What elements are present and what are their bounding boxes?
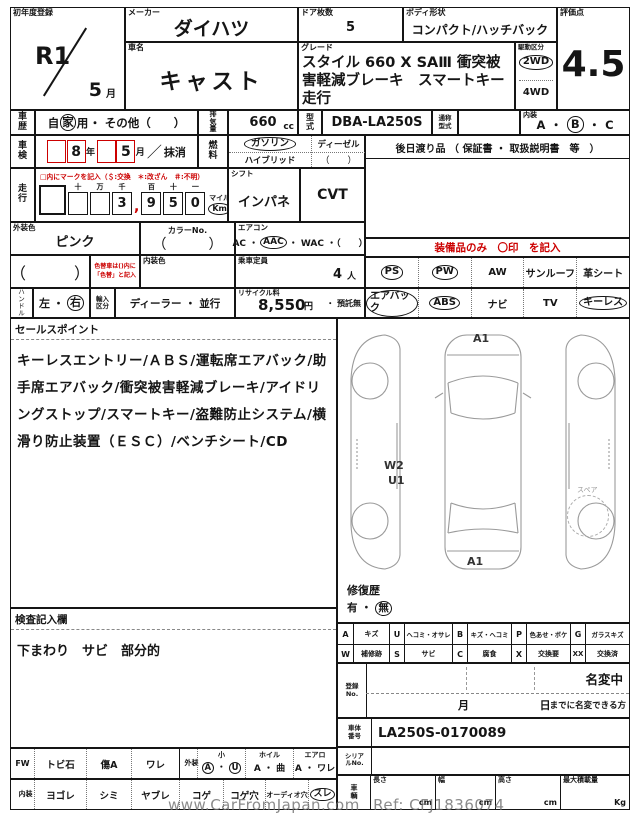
first-registration-cell: 初年度登録 R1 5 月	[10, 7, 125, 110]
capacity-cell: 乗車定員 4 人	[235, 255, 365, 288]
handle-right-circled: 右	[67, 295, 84, 311]
legend-desc-w: 補修跡	[353, 645, 389, 663]
shaken-slash: ／	[147, 141, 162, 162]
registration-month: 月	[458, 697, 469, 713]
car-name-cell: 車名 キャスト	[125, 42, 298, 110]
equip-abs: ABS	[418, 289, 471, 317]
aircon-aac-circled: AAC	[260, 236, 287, 249]
repair-history-label: 修復歴	[347, 582, 380, 598]
exterior-section-label-cell: 外装	[179, 749, 197, 778]
history-value-cell: 自家用 ・ その他（ ）	[35, 110, 198, 135]
digit-box-1	[68, 192, 88, 215]
fuel-diesel-option: ディーゼル	[311, 136, 365, 153]
glass-stone-chip: トビ石	[34, 749, 86, 778]
interior-c: C	[605, 118, 613, 132]
legend-row-1: A キズ U ヘコミ・オサレ B キズ・ヘコミ P 色あせ・ボケ G ガラスキズ	[338, 624, 629, 645]
serial-label-cell: シリアルNo.	[338, 748, 372, 774]
dims-load-unit: Kg	[614, 798, 626, 807]
fuel-other-option: （ ）	[311, 152, 365, 167]
repair-no-circled: 無	[375, 601, 392, 616]
auction-sheet: 初年度登録 R1 5 月 メーカー ダイハツ 車名 キャスト ドア枚数 5 ボデ…	[0, 0, 640, 819]
fuel-gasoline-circled: ガソリン	[244, 137, 296, 151]
spare-tire-label: スペア	[577, 485, 598, 495]
interior-a: A	[536, 118, 545, 132]
doors-label: ドア枚数	[301, 9, 333, 18]
fuel-value-cell: ガソリン ハイブリッド ディーゼル （ ）	[228, 135, 365, 168]
chassis-label: 車体番号	[347, 725, 362, 739]
legend-row-2: W 補修跡 S サビ C 腐食 X 交換要 XX 交換済	[338, 645, 629, 663]
repaint-note-1: 色替車は()内に	[91, 262, 139, 271]
car-top-view	[435, 335, 531, 569]
grade-label: グレード	[301, 44, 333, 53]
fuel-gasoline-option: ガソリン	[229, 136, 311, 153]
aircon-label: エアコン	[238, 224, 268, 232]
chassis-label-cell: 車体番号	[338, 719, 372, 746]
alias-model-label-cell: 通称型式	[432, 110, 458, 135]
transmission-value: CVT	[301, 169, 364, 221]
wheel-options: A ・ 曲	[254, 761, 285, 774]
model-code-label: 型式	[305, 114, 315, 132]
model-code-value: DBA-LA250S	[323, 111, 431, 134]
first-registration-month: 5	[89, 79, 102, 101]
registration-label-cell: 登録No.	[338, 664, 367, 717]
repaint-parens: （ ）	[11, 256, 89, 287]
aero-options: A ・ ワレ	[295, 761, 335, 774]
watermark-site: www.CarFromJapan.com	[168, 796, 360, 814]
repair-yes: 有	[347, 602, 358, 614]
use-other: ・ その他（ ）	[89, 115, 185, 131]
glass-row: FW トビ石 傷A ワレ 外装 小 A ・ U ホイル A ・ 曲 エアロ A …	[10, 748, 337, 779]
watermark-ref: Ref: CFJ1836074	[373, 796, 504, 814]
aircon-cell: エアコン AC ・ AAC ・ WAC ・（ ）	[235, 222, 365, 255]
damage-u1: U1	[388, 474, 405, 487]
shaken-value-cell: 8 年 5 月 ／ 抹消	[35, 135, 198, 168]
alias-model-label: 通称型式	[438, 115, 452, 129]
exterior-small-header: 小	[198, 750, 245, 760]
drive-2wd-option: 2WD	[516, 55, 556, 70]
displacement-label: 排気量	[209, 111, 217, 134]
legend-code-g: G	[570, 624, 585, 644]
exterior-section-label: 外装	[185, 760, 193, 768]
small-a-circled: A	[202, 762, 215, 775]
legend-code-c: C	[452, 645, 467, 663]
legend-code-xx: XX	[570, 645, 585, 663]
shift-cell: シフト インパネ	[228, 168, 300, 222]
legend-desc-x: 交換要	[526, 645, 570, 663]
digit-box-2	[90, 192, 110, 215]
model-code-label-cell: 型式	[298, 110, 322, 135]
glass-fw-label: FW	[11, 749, 34, 778]
handle-left: 左	[39, 295, 50, 311]
maker-cell: メーカー ダイハツ	[125, 7, 298, 42]
sales-points-text: キーレスエントリー/ＡＢＳ/運転席エアバック/助手席エアバック/衝突被害軽減ブレ…	[11, 340, 336, 464]
wheel-cell: ホイル A ・ 曲	[245, 749, 293, 778]
score-label: 評価点	[560, 9, 584, 18]
import-value-cell: ディーラー ・ 並行	[115, 288, 235, 318]
car-name-label: 車名	[128, 44, 144, 53]
car-left-side-view	[351, 335, 400, 569]
interior-b-circled: B	[567, 116, 584, 132]
digit-header-2: 万	[97, 182, 104, 192]
watermark: www.CarFromJapan.com Ref: CFJ1836074	[168, 796, 505, 814]
interior-dirt: ヨゴレ	[34, 780, 86, 809]
legend-desc-u: ヘコミ・オサレ	[404, 624, 452, 644]
use-circled: 家	[60, 114, 76, 130]
legend-desc-xx: 交換済	[585, 645, 629, 663]
registration-pending: 名変中	[585, 669, 623, 688]
import-label-cell: 輸入区分	[90, 288, 115, 318]
chassis-value: LA250S-0170089	[378, 719, 629, 746]
dims-height-label: 高さ	[498, 777, 512, 785]
inspection-notes-box: 検査記入欄 下まわり サビ 部分的	[10, 608, 337, 748]
registration-label: 登録No.	[344, 683, 360, 697]
drive-type-label: 駆動区分	[518, 44, 544, 51]
doors-cell: ドア枚数 5	[298, 7, 403, 42]
legend-code-s: S	[389, 645, 404, 663]
registration-bottom-row: 月 日 までに名変できる方	[366, 693, 629, 717]
equip-aw-label: AW	[488, 267, 506, 278]
legend-code-u: U	[389, 624, 404, 644]
registration-section: 登録No. 名変中 月 日 までに名変できる方	[337, 663, 630, 718]
glass-scratch-a: 傷A	[86, 749, 131, 778]
damage-front-a1: A1	[473, 332, 489, 345]
model-code-value-cell: DBA-LA250S	[322, 110, 432, 135]
registration-divider-2	[534, 667, 535, 690]
fuel-label: 燃料	[208, 142, 219, 162]
car-diagram-panel: A1 W2 U1 A1 スペア 修復歴 有 ・ 無	[337, 318, 630, 623]
legend-desc-g: ガラスキズ	[585, 624, 629, 644]
color-no-cell: カラーNo. （ ）	[140, 222, 235, 255]
serial-label: シリアルNo.	[343, 754, 367, 768]
spare-tire-circle	[567, 495, 609, 537]
shaken-erased: 抹消	[164, 144, 186, 160]
first-registration-year: R1	[35, 42, 70, 70]
aircon-post: ・ WAC ・（ ）	[289, 236, 368, 249]
shaken-year-box-empty	[47, 140, 66, 163]
body-shape-cell: ボディ形状 コンパクト/ハッチバック	[403, 7, 557, 42]
dims-length-label: 長さ	[373, 777, 387, 785]
use-pre: 自	[48, 115, 60, 131]
shaken-month-box-empty	[97, 140, 116, 163]
equip-leather-label: 革シート	[583, 265, 623, 280]
equip-aw: AW	[471, 258, 524, 287]
aero-cell: エアロ A ・ ワレ	[293, 749, 336, 778]
dims-height-unit: cm	[544, 798, 557, 807]
drive-4wd-option: 4WD	[516, 87, 556, 98]
legend-code-p: P	[511, 624, 526, 644]
interior-row-label: 内装	[19, 791, 27, 799]
equip-keyless: キーレス	[576, 289, 629, 317]
body-shape-label: ボディ形状	[406, 9, 445, 18]
import-label: 輸入区分	[96, 296, 110, 310]
digit-header-4: 百	[148, 182, 155, 192]
registration-top-row: 名変中	[366, 664, 629, 694]
drive-type-cell: 駆動区分 2WD 4WD	[515, 42, 557, 110]
legend-desc-c: 腐食	[467, 645, 511, 663]
unit-mile: マイル	[209, 193, 230, 203]
interior-color-label: 内装色	[143, 257, 166, 265]
digit-col-1: 十	[68, 182, 88, 215]
damage-legend: A キズ U ヘコミ・オサレ B キズ・ヘコミ P 色あせ・ボケ G ガラスキズ…	[337, 623, 630, 663]
sales-points-header: セールスポイント	[11, 319, 336, 340]
shaken-label: 車検	[17, 142, 28, 162]
equip-navi-label: ナビ	[487, 296, 507, 311]
capacity-unit: 人	[347, 269, 356, 282]
registration-divider-1	[466, 667, 467, 690]
equip-pw: PW	[418, 258, 471, 287]
equip-leather: 革シート	[576, 258, 629, 287]
grade-value: スタイル 660 X SAⅢ 衝突被害軽減ブレーキ スマートキー 走行	[302, 54, 512, 108]
legend-desc-p: 色あせ・ボケ	[526, 624, 570, 644]
serial-number-row: シリアルNo.	[337, 747, 630, 775]
fuel-hybrid-option: ハイブリッド	[229, 152, 311, 167]
recycle-fee-cell: リサイクル料 8,550 円 ・ 預託無	[235, 288, 365, 318]
aero-header: エアロ	[294, 750, 336, 760]
digit-col-3: 千3	[112, 182, 132, 215]
drive-2wd-circled: 2WD	[519, 55, 553, 70]
equip-airbag: エアバック	[366, 289, 418, 317]
car-name-value: キャスト	[126, 43, 297, 109]
equip-tv: TV	[523, 289, 576, 317]
small-u-circled: U	[229, 762, 242, 775]
capacity-label: 乗車定員	[238, 257, 268, 265]
alias-model-value-cell	[458, 110, 520, 135]
digit-box-4: 9	[141, 192, 161, 215]
interior-dot-1: ・	[550, 117, 562, 133]
score-cell: 評価点 4.5	[557, 7, 630, 110]
aircon-pre: AC ・	[232, 236, 258, 249]
legend-code-a: A	[338, 624, 353, 644]
handle-value-cell: 左 ・ 右	[33, 288, 90, 318]
dims-load-cell: 最大積載量 Kg	[561, 776, 629, 809]
shaken-year-box: 8	[67, 140, 86, 163]
month-suffix: 月	[106, 85, 116, 100]
equipment-header-cell: 装備品のみ 〇印 を記入	[365, 238, 630, 257]
digit-col-4: 百9	[141, 182, 161, 215]
digit-header-5: 十	[170, 182, 177, 192]
car-diagram	[343, 327, 623, 577]
digit-box-6: 0	[185, 192, 205, 215]
repaint-note-2: 「色替」と記入	[91, 271, 139, 280]
mileage-comma: ,	[134, 199, 139, 215]
inspection-notes-header: 検査記入欄	[11, 609, 336, 630]
shaken-month-box: 5	[116, 140, 135, 163]
digit-col-5: 十5	[163, 182, 183, 215]
digit-col-2: 万	[90, 182, 110, 215]
legend-code-b: B	[452, 624, 467, 644]
registration-note: までに名変できる方	[550, 699, 626, 711]
legend-desc-s: サビ	[404, 645, 452, 663]
small-dot: ・	[217, 763, 226, 773]
digit-box-5: 5	[163, 192, 183, 215]
equip-airbag-label: エアバック	[366, 290, 418, 317]
displacement-label-cell: 排気量	[198, 110, 228, 135]
color-no-parens: （ ）	[141, 234, 234, 254]
mileage-label: 走行	[17, 185, 28, 205]
maker-label: メーカー	[128, 9, 160, 18]
interior-stain: シミ	[86, 780, 131, 809]
damage-w2: W2	[384, 459, 404, 472]
history-label-cell: 車歴	[10, 110, 35, 135]
glass-crack: ワレ	[131, 749, 179, 778]
mileage-note: □内にマークを記入（＄:交換 ＊:改ざん ＃:不明）	[40, 171, 204, 181]
recycle-fee-value: 8,550	[258, 296, 305, 314]
exterior-color-cell: 外装色 ピンク	[10, 222, 140, 255]
mileage-label-cell: 走行	[10, 168, 35, 222]
use-post: 用	[77, 115, 89, 131]
legend-code-x: X	[511, 645, 526, 663]
digit-col-6: 一0	[185, 182, 205, 215]
interior-color-cell: 内装色	[140, 255, 235, 288]
history-label: 車歴	[17, 113, 28, 133]
repaint-note-cell: 色替車は()内に 「色替」と記入	[90, 255, 140, 288]
drive-divider	[519, 80, 553, 81]
later-items-cell: 後日渡り品 （ 保証書 ・ 取扱説明書 等 ）	[365, 135, 630, 238]
displacement-value-cell: 660 cc	[228, 110, 298, 135]
legend-desc-b: キズ・ヘコミ	[467, 624, 511, 644]
equip-ps: PS	[366, 258, 418, 287]
equip-keyless-label: キーレス	[579, 296, 627, 311]
shift-label: シフト	[231, 170, 254, 178]
equip-tv-label: TV	[543, 298, 558, 309]
equip-sunroof: サンルーフ	[523, 258, 576, 287]
mileage-value-cell: □内にマークを記入（＄:交換 ＊:改ざん ＃:不明） 十 万 千3 , 百9 十…	[35, 168, 228, 222]
grade-cell: グレード スタイル 660 X SAⅢ 衝突被害軽減ブレーキ スマートキー 走行	[298, 42, 515, 110]
equipment-row-2: エアバック ABS ナビ TV キーレス	[365, 288, 630, 318]
shaken-year-suffix: 年	[86, 145, 95, 158]
later-items-text: 後日渡り品 （ 保証書 ・ 取扱説明書 等 ）	[366, 136, 629, 159]
recycle-fee-status: ・ 預託無	[326, 298, 361, 309]
chassis-number-row: 車体番号 LA250S-0170089	[337, 718, 630, 747]
mileage-lead-box	[39, 185, 66, 215]
repair-dot: ・	[361, 602, 372, 614]
equipment-row-1: PS PW AW サンルーフ 革シート	[365, 257, 630, 288]
handle-label: ハンドル	[18, 289, 26, 318]
handle-dot: ・	[53, 295, 64, 311]
interior-grade-label: 内装	[523, 112, 537, 120]
wheel-header: ホイル	[246, 750, 293, 760]
equip-navi: ナビ	[471, 289, 524, 317]
legend-code-w: W	[338, 645, 353, 663]
digit-box-3: 3	[112, 192, 132, 215]
damage-rear-a1: A1	[467, 555, 483, 568]
inspection-notes-text: 下まわり サビ 部分的	[11, 630, 336, 669]
equip-abs-label: ABS	[429, 296, 460, 311]
digit-header-1: 十	[75, 182, 82, 192]
shaken-label-cell: 車検	[10, 135, 35, 168]
interior-grade-cell: 内装 A ・ B ・ C	[520, 110, 630, 135]
dims-width-label: 幅	[438, 777, 445, 785]
legend-desc-a: キズ	[353, 624, 389, 644]
dims-load-label: 最大積載量	[563, 777, 598, 785]
shaken-month-suffix: 月	[136, 145, 145, 158]
interior-dot-2: ・	[589, 117, 601, 133]
equip-pw-label: PW	[432, 265, 458, 280]
fuel-label-cell: 燃料	[198, 135, 228, 168]
first-registration-label: 初年度登録	[13, 9, 53, 18]
equip-ps-label: PS	[381, 265, 404, 280]
capacity-value: 4	[333, 267, 342, 282]
score-value: 4.5	[558, 8, 629, 109]
transmission-cell: CVT	[300, 168, 365, 222]
exterior-small-cell: 小 A ・ U	[197, 749, 245, 778]
equip-sunroof-label: サンルーフ	[526, 265, 575, 280]
digit-header-6: 一	[192, 182, 199, 192]
import-options: ディーラー ・ 並行	[116, 289, 234, 317]
exterior-color-label: 外装色	[13, 224, 36, 232]
equipment-header: 装備品のみ 〇印 を記入	[366, 239, 629, 256]
displacement-unit: cc	[283, 122, 294, 132]
sales-points-box: セールスポイント キーレスエントリー/ＡＢＳ/運転席エアバック/助手席エアバック…	[10, 318, 337, 608]
repaint-parens-cell: （ ）	[10, 255, 90, 288]
recycle-fee-unit: 円	[304, 299, 313, 312]
digit-header-3: 千	[119, 182, 126, 192]
interior-row-label-cell: 内装	[11, 780, 34, 809]
dims-height-cell: 高さ cm	[496, 776, 561, 809]
handle-label-cell: ハンドル	[10, 288, 33, 318]
